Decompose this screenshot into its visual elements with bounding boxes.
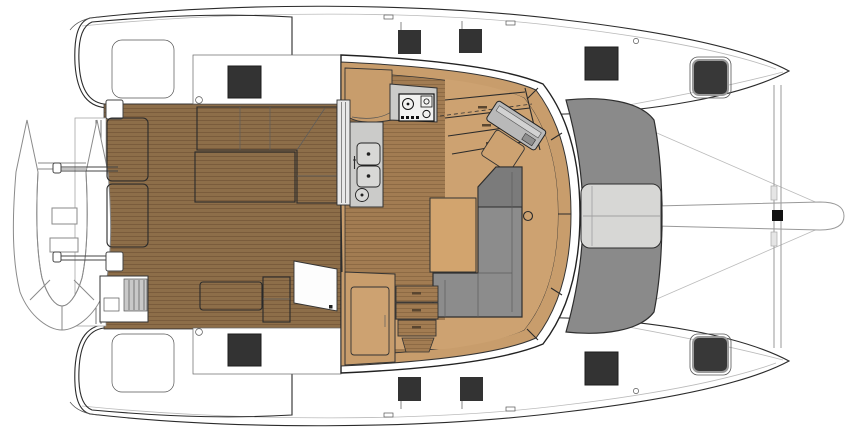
starboard-band-fitting — [196, 329, 203, 336]
salon-table — [430, 198, 476, 272]
starboard-deck-band — [193, 328, 341, 374]
salon-cabinet-door — [351, 287, 389, 355]
side-hatch-port-2 — [459, 29, 482, 53]
side-hatch-starboard-1 — [398, 377, 421, 401]
trampoline-lashing-starboard — [650, 221, 836, 302]
salon-aft-starboard — [345, 272, 438, 365]
stern-hatch-starboard — [228, 334, 261, 366]
helm-seat-outline — [294, 261, 337, 311]
port-deck-fitting — [633, 38, 638, 43]
port-rail-cleat-2 — [506, 21, 515, 25]
davit-base-aft — [106, 252, 123, 271]
crossbeam-fitting-lower — [771, 232, 777, 246]
galley-corner-cabinet — [345, 68, 392, 122]
port-band-fitting — [196, 97, 203, 104]
davit-base-forward — [106, 100, 123, 119]
crossbeam-fitting-upper — [771, 186, 777, 200]
cockpit-grill-module — [100, 276, 148, 322]
bowsprit — [652, 202, 845, 230]
starboard-deck-fitting — [633, 388, 638, 393]
catamaran-deck-plan — [0, 0, 851, 432]
bow-hatch-starboard-square — [585, 352, 618, 385]
trampoline-lashing-port — [650, 130, 836, 211]
starboard-rail-cleat-2 — [506, 407, 515, 411]
forestay-attachment — [772, 210, 783, 221]
side-hatch-port-1 — [398, 30, 421, 54]
galley-round-hob-dot — [361, 194, 364, 197]
coachroof-salon — [337, 55, 580, 373]
helm-seat-dot — [329, 305, 333, 309]
deck-plan-canvas — [0, 0, 851, 432]
tender-tube-outline — [13, 120, 110, 330]
bow-hatch-starboard-round — [693, 337, 728, 372]
stern-hatch-port — [228, 66, 261, 98]
bow-hatch-port-square — [585, 47, 618, 80]
tender-seat — [50, 238, 78, 252]
side-hatch-starboard-2 — [460, 377, 483, 401]
port-deck-band — [193, 55, 341, 104]
port-rail-cleat — [384, 15, 393, 19]
tender-engine — [52, 208, 77, 224]
starboard-rail-cleat — [384, 413, 393, 417]
stairs-lower-tread — [402, 338, 434, 352]
bow-hatch-port-round — [693, 60, 728, 95]
galley-stove — [399, 94, 434, 121]
